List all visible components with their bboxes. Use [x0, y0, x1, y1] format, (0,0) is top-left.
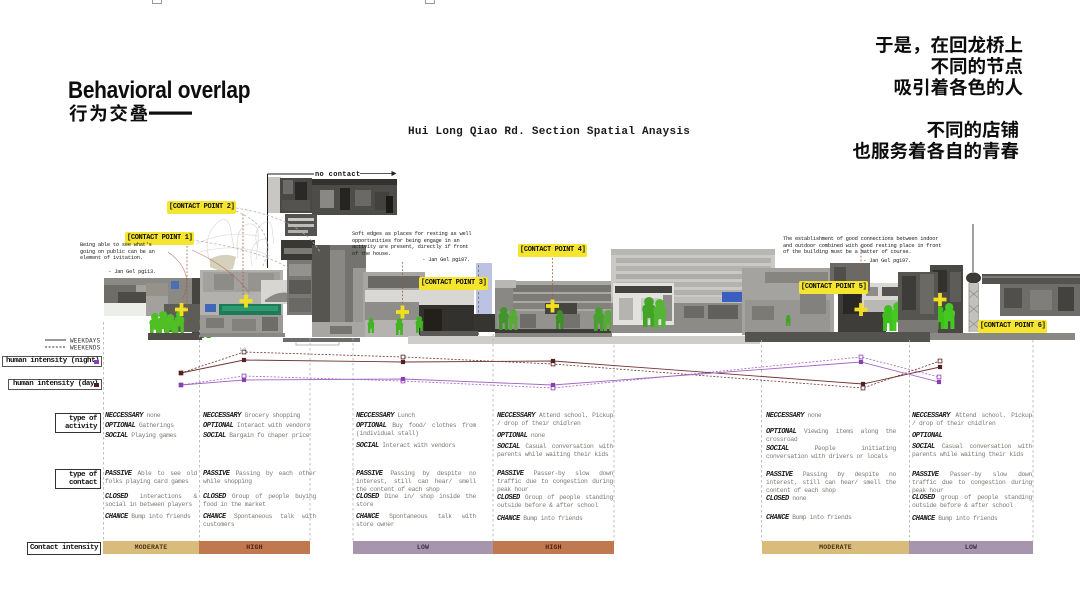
svg-text:L2: L2 [240, 347, 246, 353]
